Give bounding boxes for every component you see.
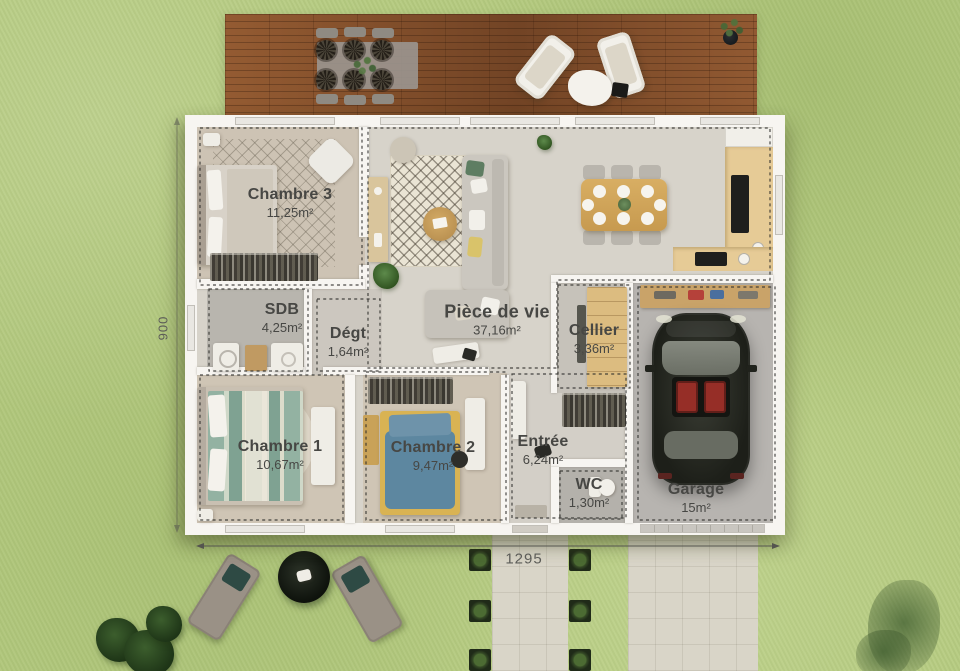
room-area: 15m² xyxy=(668,500,724,515)
room-area: 6,24m² xyxy=(518,452,569,467)
room-name: WC xyxy=(569,476,609,495)
room-area: 9,47m² xyxy=(391,458,476,473)
room-name: Chambre 3 xyxy=(248,186,333,205)
room-label-piece-de-vie: Pièce de vie 37,16m² xyxy=(444,302,549,339)
room-name: SDB xyxy=(262,301,302,320)
room-area: 11,25m² xyxy=(248,205,333,220)
room-name: Entrée xyxy=(518,433,569,452)
room-name: Chambre 1 xyxy=(238,438,323,457)
room-label-sdb: SDB 4,25m² xyxy=(262,301,302,335)
room-label-chambre1: Chambre 1 10,67m² xyxy=(238,438,323,472)
room-name: Garage xyxy=(668,481,724,500)
room-area: 4,25m² xyxy=(262,320,302,335)
room-area: 1,64m² xyxy=(328,344,368,359)
room-label-garage: Garage 15m² xyxy=(668,481,724,515)
room-area: 37,16m² xyxy=(444,323,549,338)
room-name: Cellier xyxy=(569,322,619,341)
room-label-wc: WC 1,30m² xyxy=(569,476,609,510)
room-name: Chambre 2 xyxy=(391,439,476,458)
dimension-height-label: 900 xyxy=(156,316,171,341)
room-name: Pièce de vie xyxy=(444,302,549,323)
room-label-chambre3: Chambre 3 11,25m² xyxy=(248,186,333,220)
room-area: 3,36m² xyxy=(569,341,619,356)
floor-plan-scene: Chambre 3 11,25m² SDB 4,25m² Dégt 1,64m²… xyxy=(0,0,960,671)
room-label-entree: Entrée 6,24m² xyxy=(518,433,569,467)
dimension-width-label: 1295 xyxy=(505,551,542,568)
room-name: Dégt xyxy=(328,325,368,344)
room-label-chambre2: Chambre 2 9,47m² xyxy=(391,439,476,473)
room-area: 1,30m² xyxy=(569,495,609,510)
room-area: 10,67m² xyxy=(238,457,323,472)
room-label-cellier: Cellier 3,36m² xyxy=(569,322,619,356)
room-label-degt: Dégt 1,64m² xyxy=(328,325,368,359)
